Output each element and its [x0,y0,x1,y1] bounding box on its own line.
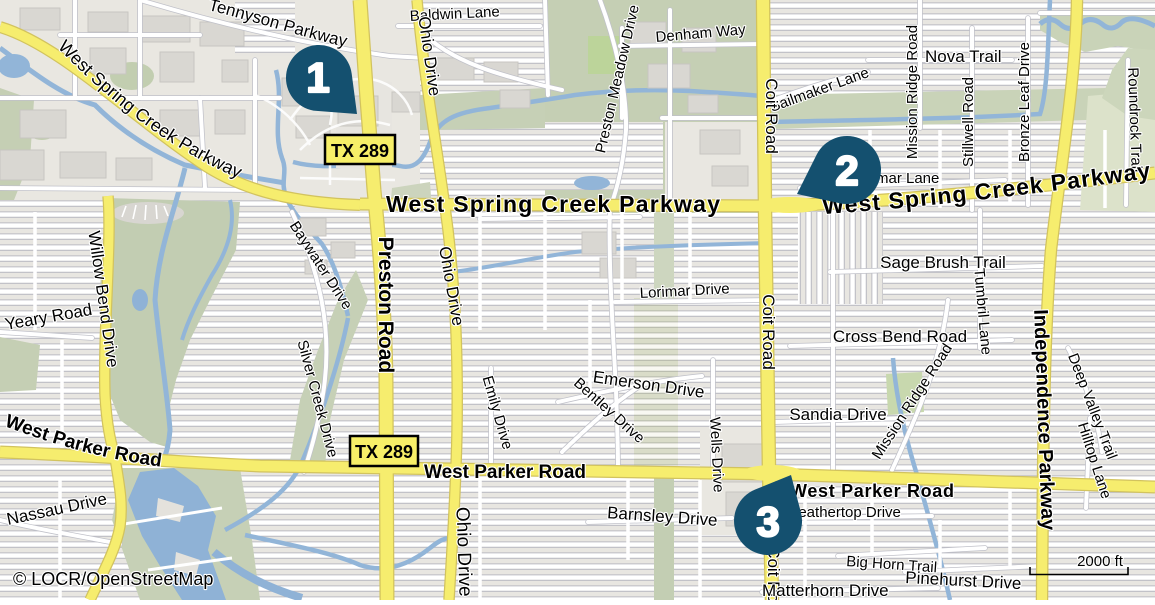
svg-text:Ohio Drive: Ohio Drive [451,507,475,597]
svg-text:Bronze Leaf Drive: Bronze Leaf Drive [1016,42,1033,162]
svg-text:Matterhorn Drive: Matterhorn Drive [762,581,889,600]
svg-text:1: 1 [306,54,329,101]
svg-text:mar Lane: mar Lane [876,170,939,187]
svg-text:Stillwell Road: Stillwell Road [960,77,977,167]
svg-text:Coit Road: Coit Road [759,294,778,370]
svg-text:Coit Road: Coit Road [762,78,781,154]
svg-text:West Parker Road: West Parker Road [790,481,954,501]
svg-text:West Parker Road: West Parker Road [424,462,586,483]
svg-text:Sandia Drive: Sandia Drive [789,405,886,424]
svg-text:Preston Road: Preston Road [374,237,397,374]
svg-text:West Spring Creek Parkway: West Spring Creek Parkway [386,191,720,217]
svg-text:TX 289: TX 289 [355,442,413,462]
svg-text:Nova Trail: Nova Trail [925,47,1002,66]
svg-text:3: 3 [756,498,779,545]
svg-text:2: 2 [835,147,858,194]
svg-text:Cross Bend Road: Cross Bend Road [833,327,967,346]
svg-text:Mission Ridge Road: Mission Ridge Road [904,25,921,159]
svg-text:Leathertop Drive: Leathertop Drive [790,504,901,521]
svg-text:2000 ft: 2000 ft [1077,553,1124,570]
svg-text:© LOCR/OpenStreetMap: © LOCR/OpenStreetMap [13,569,213,589]
svg-text:TX 289: TX 289 [331,141,389,161]
